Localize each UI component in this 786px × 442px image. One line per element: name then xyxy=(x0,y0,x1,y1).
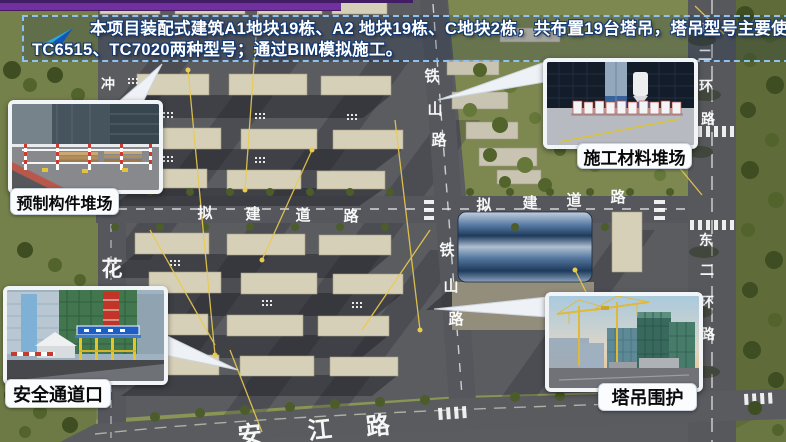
pointer-material-yard xyxy=(438,62,545,100)
crane-enclosure-image xyxy=(545,292,703,392)
material-yard-label: 施工材料堆场 xyxy=(577,143,692,169)
precast-yard-image xyxy=(8,100,163,194)
safety-entrance-label: 安全通道口 xyxy=(5,379,111,408)
safety-entrance-image xyxy=(3,286,168,385)
material-yard-image xyxy=(543,58,698,149)
pointer-crane-enclosure xyxy=(434,297,547,317)
pointer-safety-entrance xyxy=(159,332,238,370)
pointer-precast-yard xyxy=(116,64,162,104)
slide-canvas: 铁 山 路 铁 山 路 拟 建 道 路 拟 建 道 路 花 冲 东 二 环 路 … xyxy=(0,0,786,442)
precast-yard-label: 预制构件堆场 xyxy=(10,188,119,215)
crane-enclosure-label: 塔吊围护 xyxy=(598,383,697,411)
